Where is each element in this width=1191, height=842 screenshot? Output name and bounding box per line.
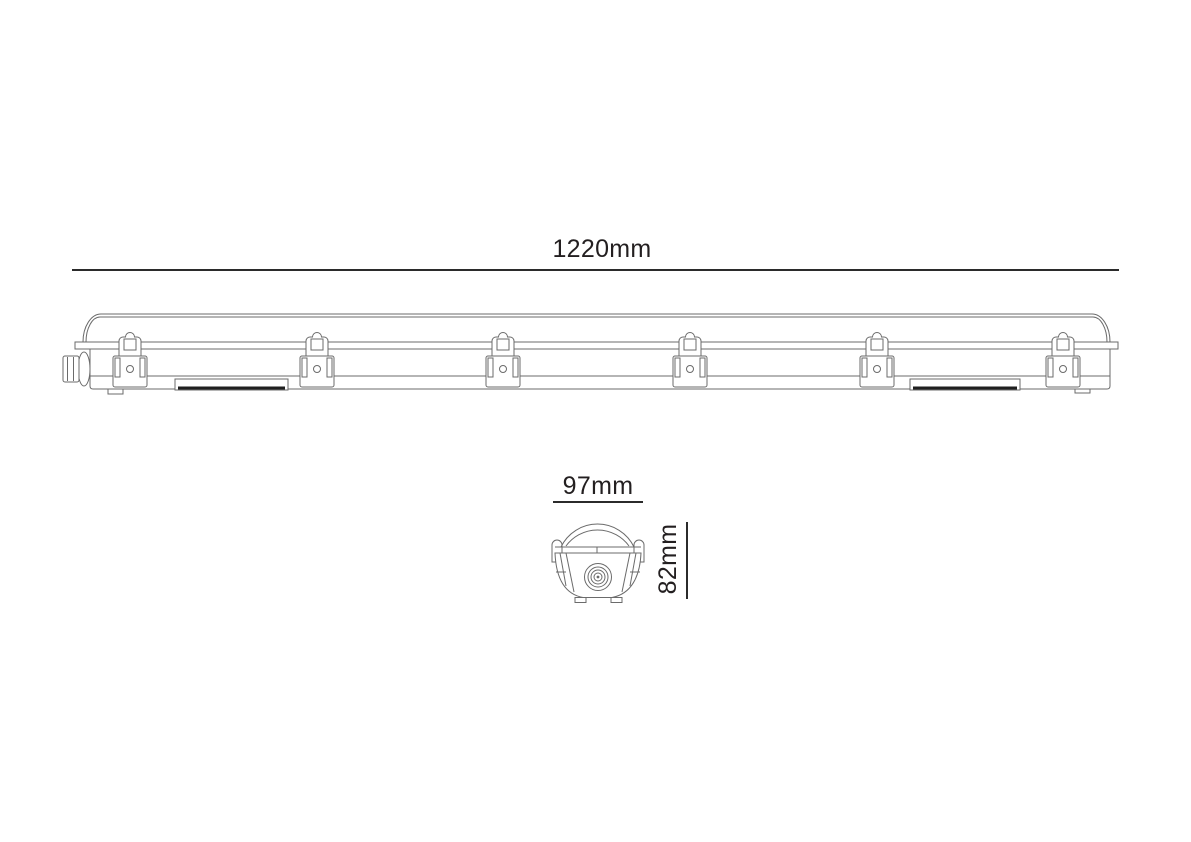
technical-drawing-canvas: 1220mm 97mm 82mm (0, 0, 1191, 842)
mounting-clip (673, 333, 707, 387)
diffuser-lid (83, 314, 1110, 342)
length-dimension-label: 1220mm (502, 235, 702, 263)
end-view-dome-inner (566, 530, 629, 546)
end-view-flange (555, 547, 641, 553)
mounting-clip (1046, 333, 1080, 387)
end-view (552, 524, 644, 602)
end-view-left-foot (575, 598, 586, 603)
height-dimension-label: 82mm (654, 509, 682, 609)
mounting-clip (300, 333, 334, 387)
left-sticker (175, 379, 288, 390)
left-endcap-foot (108, 389, 123, 394)
side-view (63, 314, 1118, 394)
mounting-clip (113, 333, 147, 387)
right-endcap-foot (1075, 389, 1090, 393)
width-dimension-label: 97mm (548, 472, 648, 500)
mounting-clip (486, 333, 520, 387)
end-view-dome-outer (561, 524, 634, 547)
luminaire-drawing (0, 0, 1191, 842)
right-sticker (910, 379, 1020, 390)
mounting-clip (860, 333, 894, 387)
end-view-right-foot (611, 598, 622, 603)
gasket-flange (75, 342, 1118, 349)
cable-gland (63, 352, 90, 386)
